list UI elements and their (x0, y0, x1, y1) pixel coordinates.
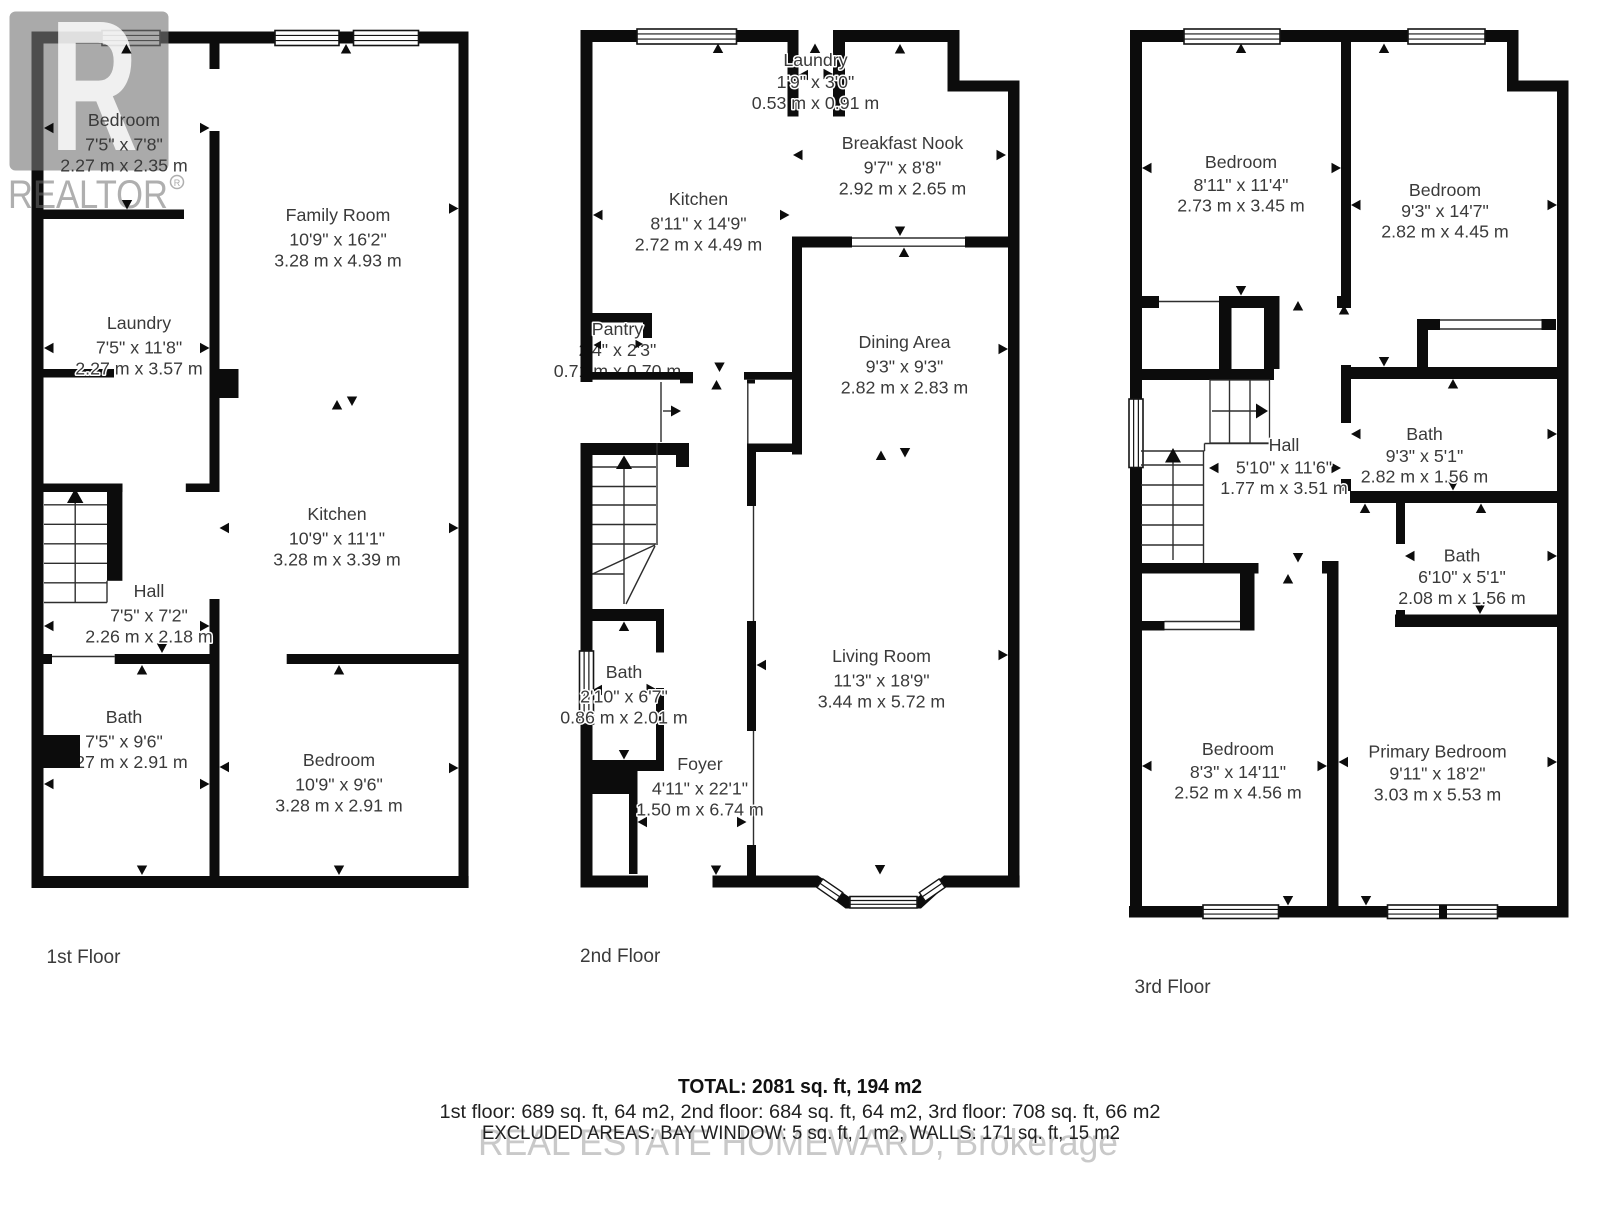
svg-text:0.53 m x 0.91 m: 0.53 m x 0.91 m (752, 93, 880, 113)
svg-text:Bedroom: Bedroom (88, 110, 160, 130)
svg-text:Bath: Bath (1406, 424, 1443, 444)
svg-text:2.72 m x 4.49 m: 2.72 m x 4.49 m (635, 235, 763, 255)
svg-text:8'3" x 14'11": 8'3" x 14'11" (1190, 762, 1286, 782)
svg-text:REALTOR: REALTOR (8, 173, 168, 217)
svg-text:Family Room: Family Room (286, 205, 391, 225)
svg-text:Primary Bedroom: Primary Bedroom (1368, 742, 1506, 762)
svg-text:1'9" x 3'0": 1'9" x 3'0" (777, 72, 855, 92)
svg-text:EXCLUDED AREAS: BAY WINDOW: 5: EXCLUDED AREAS: BAY WINDOW: 5 sq. ft, 1 … (482, 1122, 1120, 1144)
svg-text:Pantry: Pantry (592, 319, 643, 339)
svg-text:8'11" x 14'9": 8'11" x 14'9" (650, 214, 746, 234)
svg-text:Laundry: Laundry (107, 313, 171, 333)
svg-text:Bedroom: Bedroom (1409, 180, 1481, 200)
svg-text:1.77 m x 3.51 m: 1.77 m x 3.51 m (1220, 478, 1348, 498)
svg-text:10'9" x 9'6": 10'9" x 9'6" (295, 775, 383, 795)
svg-text:10'9" x 11'1": 10'9" x 11'1" (289, 529, 385, 549)
svg-text:4'11" x 22'1": 4'11" x 22'1" (652, 779, 748, 799)
svg-text:2'10" x 6'7": 2'10" x 6'7" (580, 687, 668, 707)
svg-text:11'3" x 18'9": 11'3" x 18'9" (833, 671, 929, 691)
svg-text:Bath: Bath (106, 707, 143, 727)
svg-text:3.28 m x 4.93 m: 3.28 m x 4.93 m (274, 251, 402, 271)
svg-text:9'7" x 8'8": 9'7" x 8'8" (864, 158, 942, 178)
svg-text:Living Room: Living Room (832, 646, 931, 666)
svg-text:9'3" x 9'3": 9'3" x 9'3" (866, 357, 944, 377)
svg-text:2.26 m x 2.18 m: 2.26 m x 2.18 m (85, 627, 213, 647)
svg-text:7'5" x 11'8": 7'5" x 11'8" (96, 338, 182, 358)
svg-text:Hall: Hall (1269, 435, 1300, 455)
svg-text:8'11" x 11'4": 8'11" x 11'4" (1194, 175, 1289, 195)
svg-text:Bedroom: Bedroom (303, 750, 375, 770)
svg-text:9'3" x 5'1": 9'3" x 5'1" (1386, 446, 1464, 466)
svg-text:2.27 m x 2.35 m: 2.27 m x 2.35 m (60, 156, 188, 176)
svg-text:3.03 m x 5.53 m: 3.03 m x 5.53 m (1374, 785, 1502, 805)
svg-text:10'9" x 16'2": 10'9" x 16'2" (289, 230, 387, 250)
svg-text:3.28 m x 2.91 m: 3.28 m x 2.91 m (275, 796, 403, 816)
svg-text:7'5" x 9'6": 7'5" x 9'6" (85, 732, 163, 752)
svg-text:R: R (174, 178, 181, 188)
svg-text:1.50 m x 6.74 m: 1.50 m x 6.74 m (636, 800, 764, 820)
svg-text:Kitchen: Kitchen (307, 504, 366, 524)
svg-text:Hall: Hall (134, 581, 165, 601)
svg-text:9'3" x 14'7": 9'3" x 14'7" (1401, 201, 1489, 221)
svg-text:Bath: Bath (606, 662, 643, 682)
svg-text:Bedroom: Bedroom (1205, 152, 1277, 172)
svg-text:Kitchen: Kitchen (669, 189, 728, 209)
svg-text:2.27 m x 3.57 m: 2.27 m x 3.57 m (75, 359, 203, 379)
svg-text:2.52 m x 4.56 m: 2.52 m x 4.56 m (1174, 783, 1302, 803)
svg-text:Foyer: Foyer (677, 754, 723, 774)
svg-text:TOTAL: 2081 sq. ft, 194 m2: TOTAL: 2081 sq. ft, 194 m2 (678, 1076, 922, 1098)
svg-text:6'10" x 5'1": 6'10" x 5'1" (1418, 567, 1506, 587)
svg-text:9'11" x 18'2": 9'11" x 18'2" (1389, 764, 1485, 784)
svg-text:2nd Floor: 2nd Floor (580, 946, 661, 967)
svg-text:2.92 m x 2.65 m: 2.92 m x 2.65 m (839, 179, 967, 199)
svg-text:3rd Floor: 3rd Floor (1135, 977, 1212, 998)
svg-text:3.28 m x 3.39 m: 3.28 m x 3.39 m (273, 550, 401, 570)
svg-text:Breakfast Nook: Breakfast Nook (842, 133, 964, 153)
svg-text:2.73 m x 3.45 m: 2.73 m x 3.45 m (1177, 196, 1305, 216)
svg-text:Laundry: Laundry (783, 50, 847, 70)
svg-text:Bath: Bath (1444, 546, 1481, 566)
svg-text:7'5" x 7'8": 7'5" x 7'8" (85, 135, 163, 155)
svg-text:2.82 m x 1.56 m: 2.82 m x 1.56 m (1361, 467, 1489, 487)
svg-text:Dining Area: Dining Area (859, 332, 951, 352)
svg-text:5'10" x 11'6": 5'10" x 11'6" (1236, 458, 1332, 478)
svg-text:3.44 m x 5.72 m: 3.44 m x 5.72 m (818, 692, 946, 712)
svg-text:7'5" x 7'2": 7'5" x 7'2" (110, 606, 188, 626)
svg-text:2.08 m x 1.56 m: 2.08 m x 1.56 m (1398, 588, 1526, 608)
svg-text:Bedroom: Bedroom (1202, 739, 1274, 759)
svg-text:1st floor: 689 sq. ft, 64 m2,: 1st floor: 689 sq. ft, 64 m2, 2nd floor:… (440, 1101, 1161, 1123)
svg-text:0.86 m x 2.01 m: 0.86 m x 2.01 m (560, 708, 688, 728)
svg-text:2.82 m x 4.45 m: 2.82 m x 4.45 m (1381, 222, 1509, 242)
svg-text:2.82 m x 2.83 m: 2.82 m x 2.83 m (841, 378, 969, 398)
svg-text:1st Floor: 1st Floor (47, 947, 122, 968)
